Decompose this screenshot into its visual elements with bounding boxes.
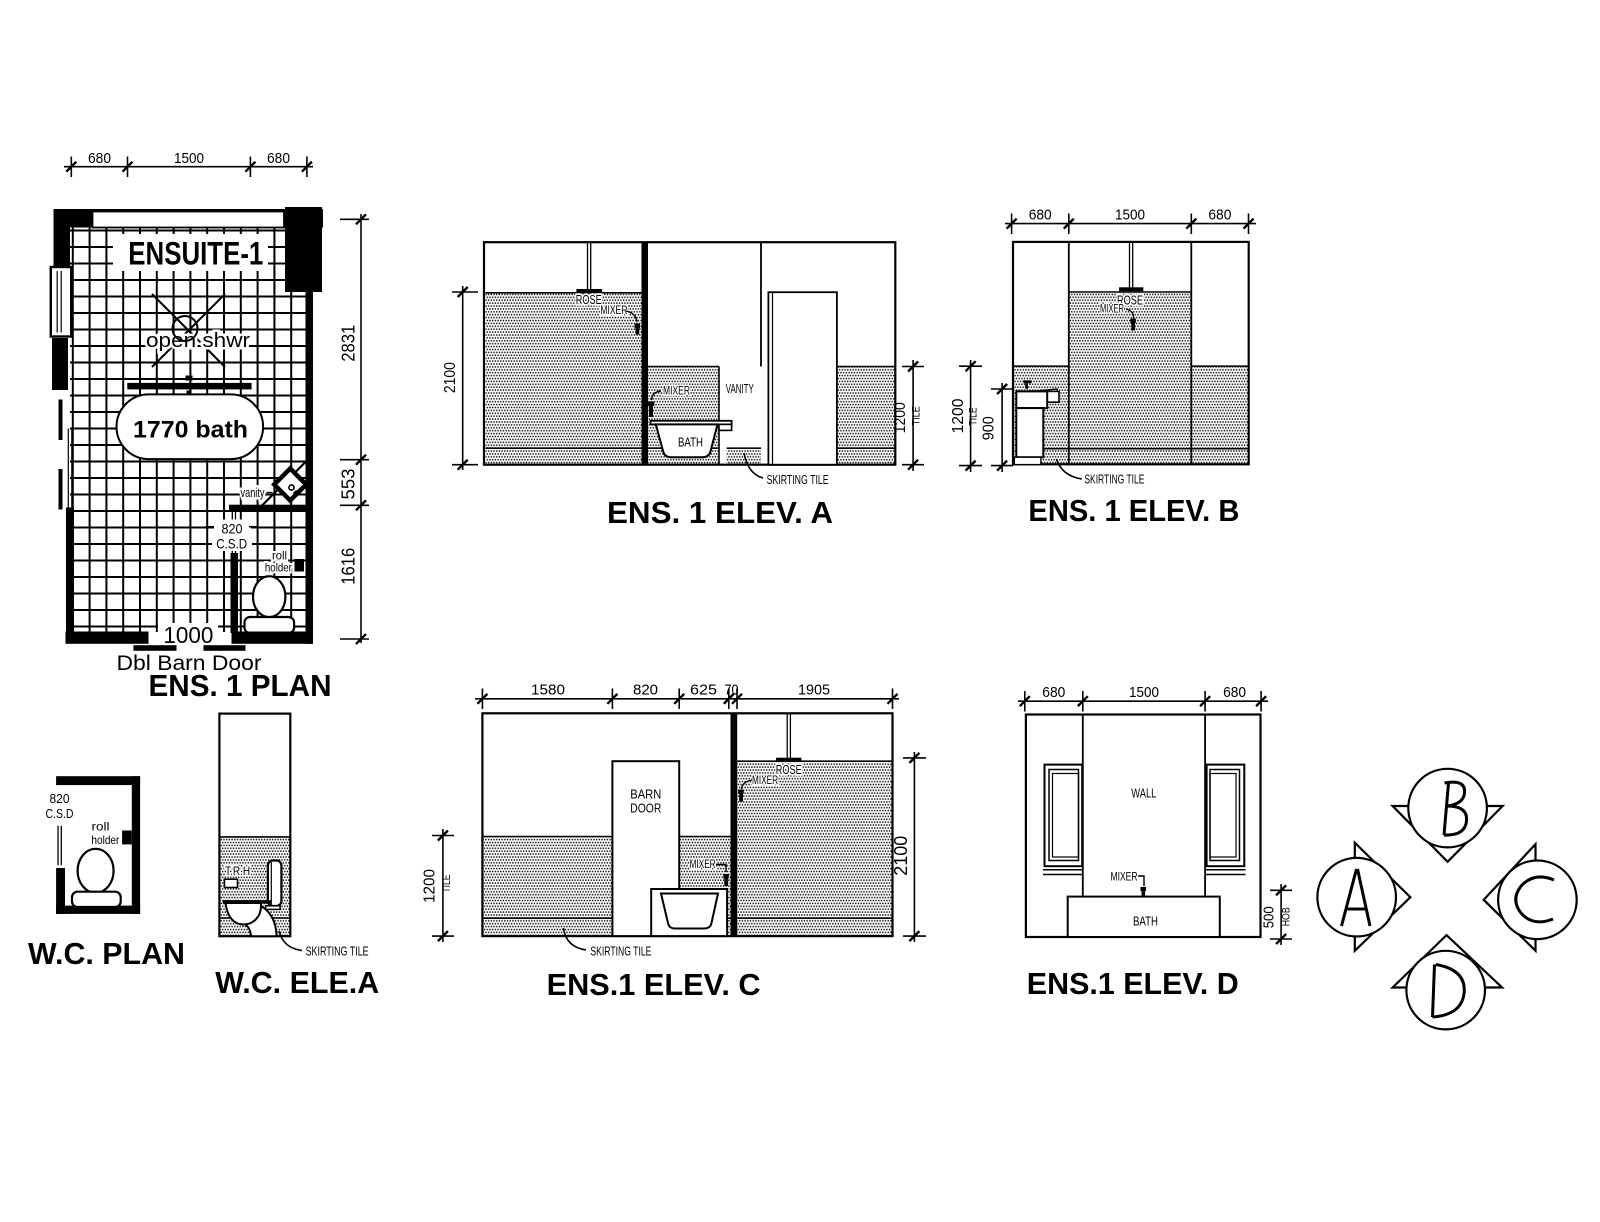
svg-text:WALL: WALL	[1131, 786, 1156, 801]
svg-text:C.S.D: C.S.D	[216, 536, 247, 552]
svg-text:ENS. 1 ELEV. B: ENS. 1 ELEV. B	[1028, 493, 1239, 528]
svg-text:1200: 1200	[422, 869, 439, 903]
svg-text:ENS.1 ELEV. C: ENS.1 ELEV. C	[547, 967, 761, 1002]
svg-text:MIXER: MIXER	[1111, 872, 1138, 884]
svg-text:SKIRTING TILE: SKIRTING TILE	[306, 944, 369, 959]
svg-text:ROSE: ROSE	[776, 762, 802, 777]
svg-text:DOOR: DOOR	[630, 801, 661, 816]
svg-text:TILE: TILE	[911, 406, 923, 425]
svg-text:VANITY: VANITY	[726, 382, 754, 396]
svg-text:820: 820	[222, 521, 243, 537]
svg-text:ENS. 1 PLAN: ENS. 1 PLAN	[149, 668, 332, 703]
svg-text:680: 680	[88, 150, 111, 167]
svg-text:SKIRTING TILE: SKIRTING TILE	[767, 472, 829, 487]
svg-text:1500: 1500	[1129, 684, 1159, 701]
svg-text:MIXER: MIXER	[1100, 304, 1124, 316]
svg-text:680: 680	[1208, 206, 1231, 223]
svg-text:680: 680	[1223, 684, 1246, 701]
svg-text:1905: 1905	[798, 682, 830, 699]
svg-text:MIXER: MIXER	[663, 386, 690, 398]
svg-text:1200: 1200	[892, 402, 909, 433]
svg-text:680: 680	[1042, 684, 1065, 701]
svg-text:ROSE: ROSE	[576, 292, 602, 307]
svg-text:ENSUITE-1: ENSUITE-1	[128, 236, 263, 272]
svg-text:820: 820	[633, 682, 658, 699]
svg-text:HOB: HOB	[1280, 907, 1292, 926]
svg-text:553: 553	[339, 469, 359, 500]
svg-text:roll: roll	[92, 820, 110, 834]
svg-text:BATH: BATH	[678, 436, 703, 450]
svg-text:1000: 1000	[163, 622, 213, 648]
svg-text:BARN: BARN	[630, 787, 661, 802]
svg-text:vanity: vanity	[241, 486, 266, 500]
svg-text:680: 680	[267, 150, 290, 167]
svg-text:TILE: TILE	[441, 875, 453, 893]
svg-text:1616: 1616	[339, 548, 359, 585]
svg-text:2100: 2100	[442, 362, 459, 393]
svg-text:1770 bath: 1770 bath	[133, 417, 248, 444]
svg-text:holder: holder	[91, 833, 119, 847]
svg-text:900: 900	[981, 416, 998, 440]
svg-text:500: 500	[1261, 906, 1278, 928]
svg-text:SKIRTING TILE: SKIRTING TILE	[590, 943, 651, 958]
svg-text:MIXER: MIXER	[600, 305, 627, 317]
svg-text:MIXER: MIXER	[752, 775, 778, 787]
svg-text:ENS.1 ELEV. D: ENS.1 ELEV. D	[1027, 966, 1239, 1001]
svg-text:1500: 1500	[1115, 206, 1145, 223]
svg-text:70: 70	[725, 682, 739, 699]
svg-text:MIXER: MIXER	[690, 859, 716, 871]
svg-text:holder: holder	[265, 561, 292, 575]
svg-text:T.R.H.: T.R.H.	[225, 864, 253, 878]
svg-text:BATH: BATH	[1133, 914, 1158, 929]
svg-text:1580: 1580	[531, 682, 565, 699]
svg-text:open shwr: open shwr	[146, 330, 250, 352]
svg-text:W.C. PLAN: W.C. PLAN	[28, 936, 185, 971]
svg-text:W.C. ELE.A: W.C. ELE.A	[215, 965, 379, 1000]
svg-text:1200: 1200	[950, 398, 967, 433]
svg-text:680: 680	[1029, 206, 1052, 223]
svg-text:820: 820	[50, 791, 70, 806]
svg-text:ENS. 1 ELEV. A: ENS. 1 ELEV. A	[607, 495, 833, 530]
svg-text:625: 625	[690, 682, 717, 699]
svg-text:TILE: TILE	[968, 408, 980, 426]
svg-text:SKIRTING TILE: SKIRTING TILE	[1084, 472, 1144, 487]
svg-text:1500: 1500	[174, 150, 204, 167]
svg-text:2100: 2100	[891, 836, 911, 876]
svg-text:C.S.D: C.S.D	[46, 806, 74, 821]
svg-text:2831: 2831	[339, 325, 359, 362]
